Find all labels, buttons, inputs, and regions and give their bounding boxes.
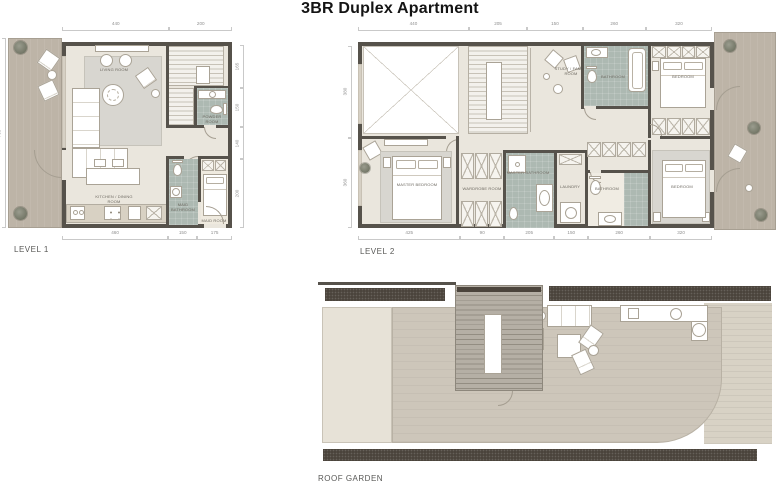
roof-garden-plan: ROOF GARDEN [0, 0, 780, 494]
pouf [588, 345, 599, 356]
planter [322, 448, 758, 462]
plan-label-roof: ROOF GARDEN [318, 474, 383, 483]
floor-plan-sheet: 3BR Duplex Apartment LIVING ROOM [0, 0, 780, 494]
stair-head-wall [457, 287, 541, 292]
outdoor-sofa [547, 305, 592, 327]
roof-main-deck [392, 307, 722, 443]
planter [324, 287, 446, 302]
counter-sink [670, 308, 682, 320]
planter [548, 285, 772, 302]
stair-well [484, 314, 502, 374]
roof-deck-panel [322, 307, 392, 443]
bbq-grill-box [628, 308, 639, 319]
round-grill [692, 323, 706, 337]
wall [318, 282, 456, 285]
